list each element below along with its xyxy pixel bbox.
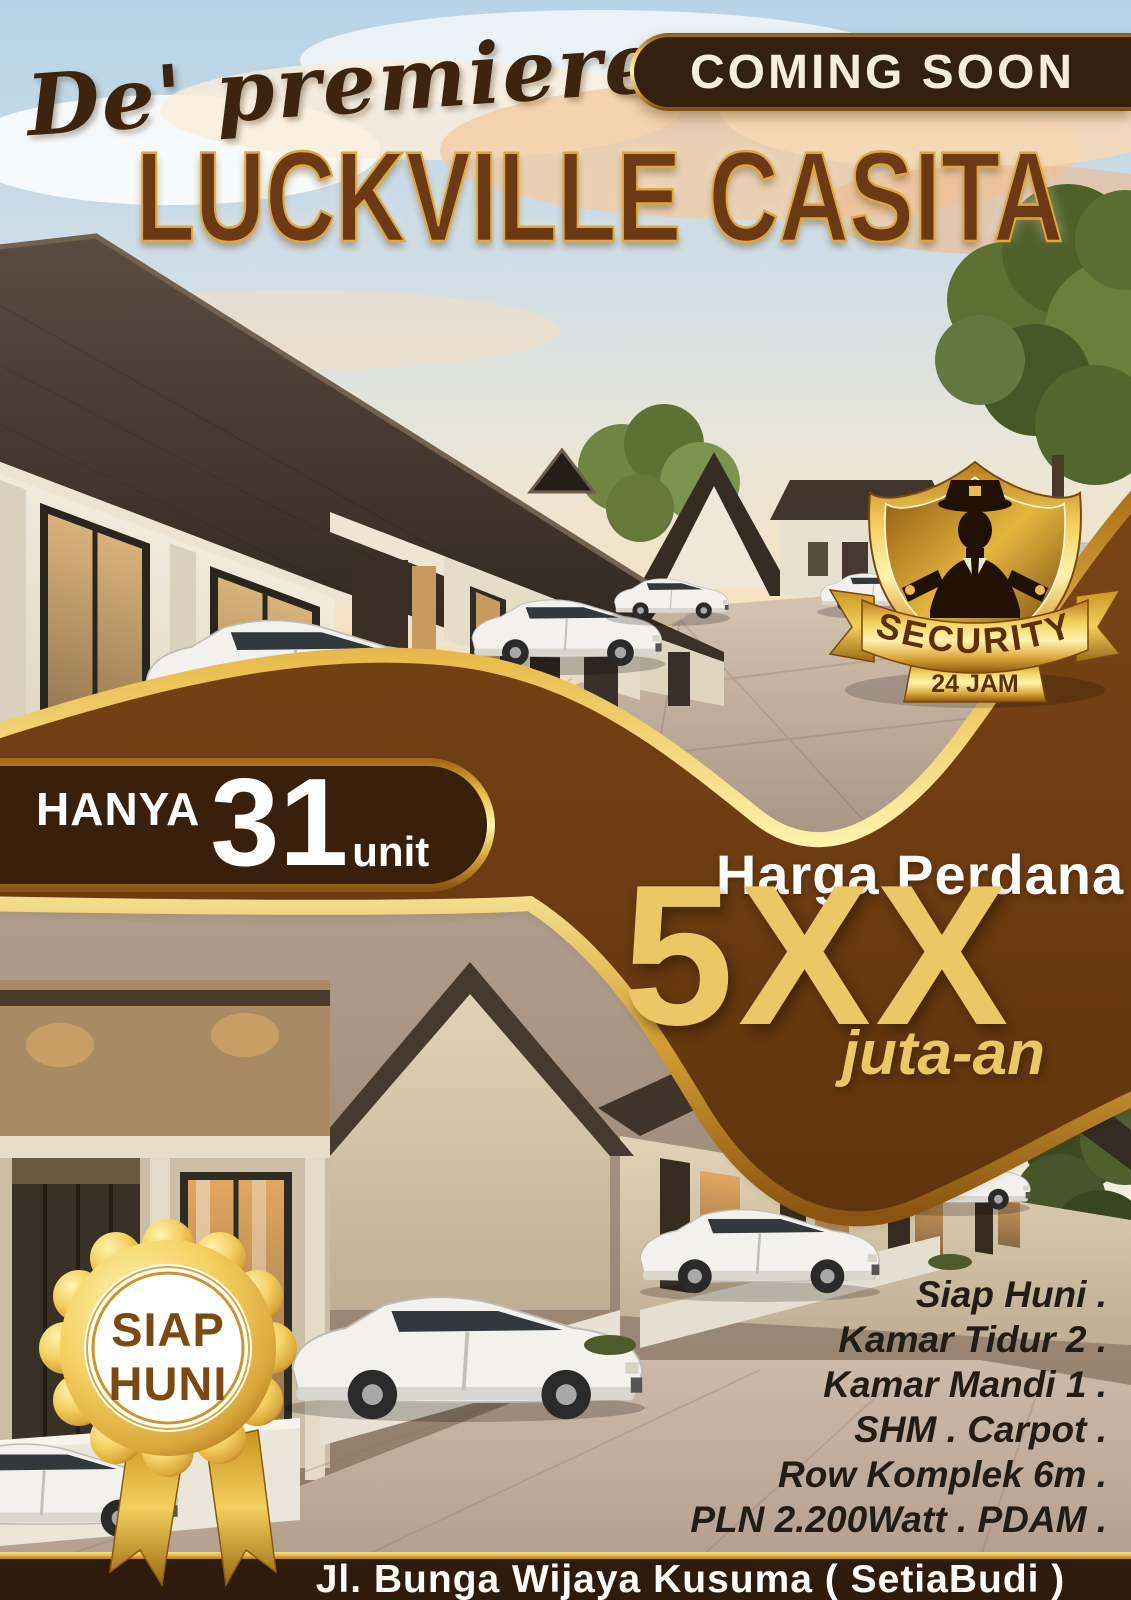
security-badge-subtitle: 24 JAM: [931, 670, 1019, 698]
project-title: LUCKVILLE CASITA: [136, 134, 996, 262]
ready-badge: SIAP HUNI: [39, 1219, 297, 1585]
svg-text:SECURITY: SECURITY: [872, 604, 1079, 661]
coming-soon-label: COMING SOON: [634, 37, 1131, 107]
address-bar: Jl. Bunga Wijaya Kusuma ( SetiaBudi ): [0, 1552, 1131, 1600]
brown-swoosh-ribbon: [0, 0, 1131, 1600]
pavement: [200, 572, 1131, 860]
swoosh-shadow: [0, 490, 1131, 1221]
feature-item: Row Komplek 6m .: [547, 1452, 1107, 1497]
feature-item: PLN 2.200Watt . PDAM .: [547, 1497, 1107, 1542]
tree-icon: [935, 184, 1131, 525]
dusk-sky: [980, 970, 1131, 1280]
garden-wall: [0, 1428, 300, 1546]
far-hills: [860, 535, 1131, 575]
tree-icon: [982, 1028, 1131, 1290]
badge-layer: SECURITY 24 JAM: [0, 0, 1131, 1600]
compound-wall: [980, 1260, 1131, 1320]
left-foreground-house: [0, 980, 330, 1480]
ready-badge-bottom: HUNI: [109, 1357, 228, 1410]
address-text: Jl. Bunga Wijaya Kusuma ( SetiaBudi ): [0, 1559, 1131, 1600]
units-prefix: HANYA: [36, 782, 200, 836]
feature-list: Siap Huni . Kamar Tidur 2 . Kamar Mandi …: [547, 1272, 1107, 1542]
right-house-row: [598, 992, 1131, 1347]
security-guard-icon: [902, 480, 1048, 618]
feature-item: Siap Huni .: [547, 1272, 1107, 1317]
price-suffix: juta-an: [690, 1018, 1045, 1089]
low-wall: [640, 1236, 940, 1348]
price-label: Harga Perdana: [700, 842, 1131, 907]
units-banner: HANYA 31 unit: [36, 762, 486, 888]
pavement-lines: [240, 620, 1131, 860]
security-badge-title: SECURITY: [872, 604, 1079, 661]
shield-icon: [869, 462, 1081, 668]
garden-wall: [0, 1418, 300, 1452]
price-value: 5XX: [585, 856, 1050, 1056]
units-label: unit: [352, 828, 429, 876]
clouds: [0, 10, 1131, 441]
feature-item: Kamar Tidur 2 .: [547, 1317, 1107, 1362]
low-wall: [320, 1310, 620, 1446]
rosette-icon: [39, 1219, 297, 1477]
brand-script-text: De' premiere: [23, 12, 668, 155]
swoosh-gold-edge: [0, 480, 1131, 1211]
property-poster: De' premiere COMING SOON LUCKVILLE CASIT…: [0, 0, 1131, 1600]
pavement-lines: [60, 1360, 1040, 1558]
bottom-render-scene: [0, 840, 1131, 1558]
ready-badge-top: SIAP: [111, 1303, 225, 1356]
security-badge: SECURITY 24 JAM: [830, 462, 1120, 708]
car-icon: [130, 574, 927, 756]
pavement: [0, 1360, 1131, 1558]
car-icon: [0, 1158, 1030, 1537]
sky: [0, 0, 1131, 860]
center-gable-house: [306, 962, 634, 1310]
top-render-scene: [0, 0, 1131, 860]
coming-soon-badge: COMING SOON: [630, 33, 1131, 111]
main-house-row: [0, 236, 724, 860]
units-count: 31: [210, 766, 348, 880]
hedge: [930, 560, 1131, 582]
units-banner-shape: [0, 762, 491, 888]
ribbon-banner: [830, 590, 1120, 702]
tree-icon: [578, 404, 740, 542]
feature-item: SHM . Carpot .: [547, 1407, 1107, 1452]
feature-item: Kamar Mandi 1 .: [547, 1362, 1107, 1407]
swoosh-body: [0, 480, 1131, 1211]
house-across-street: [634, 452, 1131, 596]
